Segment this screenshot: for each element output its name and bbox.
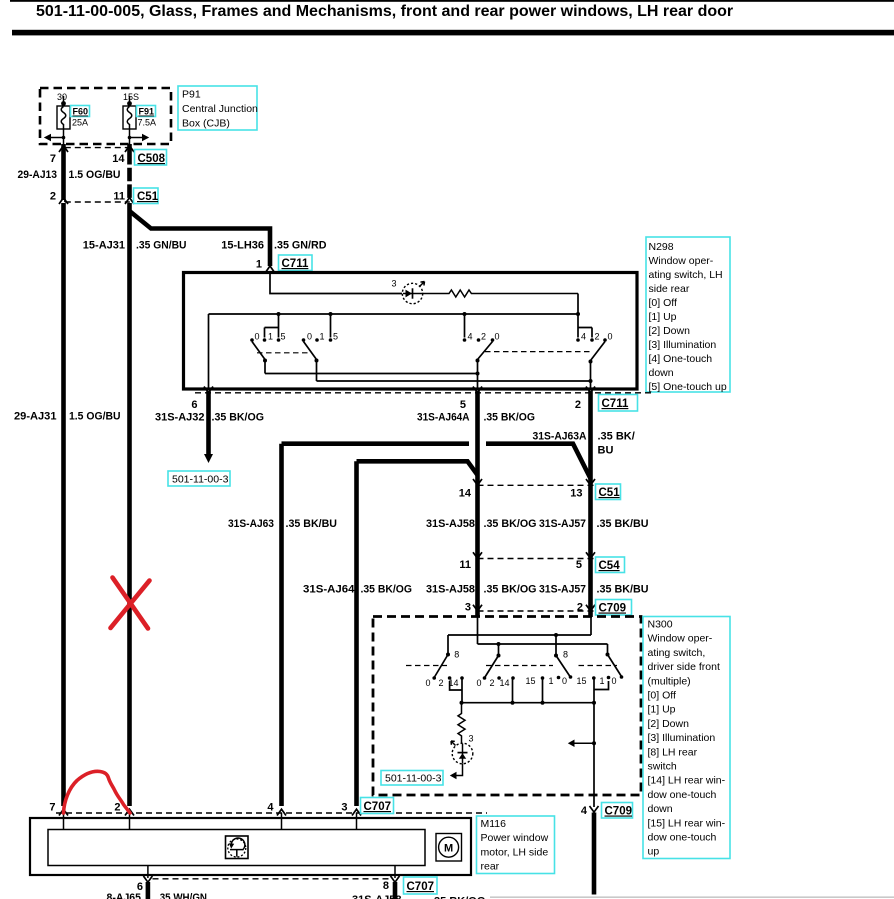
- svg-text:15: 15: [526, 676, 536, 686]
- svg-text:BU: BU: [598, 445, 614, 457]
- svg-text:[14] LH rear win-: [14] LH rear win-: [648, 775, 726, 787]
- svg-text:C51: C51: [599, 487, 621, 499]
- svg-text:C707: C707: [364, 801, 392, 813]
- svg-text:0: 0: [608, 332, 613, 342]
- svg-text:.35 BK/OG: .35 BK/OG: [484, 584, 537, 596]
- svg-text:501-11-00-3: 501-11-00-3: [385, 773, 442, 785]
- svg-text:501-11-00-005, Glass, Frames a: 501-11-00-005, Glass, Frames and Mechani…: [36, 3, 733, 20]
- svg-text:5: 5: [576, 559, 582, 571]
- svg-text:0: 0: [307, 332, 312, 342]
- svg-text:3: 3: [341, 802, 347, 814]
- svg-text:C711: C711: [602, 398, 629, 410]
- svg-text:F60: F60: [73, 107, 89, 117]
- svg-text:0: 0: [426, 678, 431, 688]
- svg-text:.35 BK/OG: .35 BK/OG: [361, 584, 413, 596]
- svg-text:0: 0: [255, 332, 260, 342]
- svg-text:dow one-touch: dow one-touch: [648, 789, 717, 801]
- svg-text:3: 3: [465, 602, 471, 614]
- svg-text:1: 1: [268, 332, 273, 342]
- svg-text:5: 5: [333, 332, 338, 342]
- svg-text:[1] Up: [1] Up: [648, 704, 676, 716]
- svg-text:C54: C54: [599, 560, 621, 572]
- svg-text:down: down: [649, 367, 674, 379]
- svg-text:1: 1: [256, 259, 262, 271]
- svg-text:N300: N300: [648, 619, 673, 631]
- svg-text:4: 4: [468, 332, 473, 342]
- svg-text:4: 4: [581, 332, 586, 342]
- svg-text:1.5 OG/BU: 1.5 OG/BU: [69, 411, 121, 423]
- svg-text:[4] One-touch: [4] One-touch: [649, 353, 713, 365]
- svg-text:7.5A: 7.5A: [138, 118, 157, 128]
- svg-text:[15] LH rear win-: [15] LH rear win-: [648, 817, 726, 829]
- svg-text:501-11-00-3: 501-11-00-3: [172, 474, 229, 486]
- svg-text:dow one-touch: dow one-touch: [648, 832, 717, 844]
- svg-text:15: 15: [577, 676, 587, 686]
- svg-text:30: 30: [57, 92, 67, 102]
- svg-text:C51: C51: [137, 191, 159, 203]
- svg-text:.35 BK/OG: .35 BK/OG: [484, 412, 536, 424]
- svg-text:[0] Off: [0] Off: [648, 690, 676, 702]
- svg-text:11: 11: [459, 559, 471, 571]
- svg-text:Window oper-: Window oper-: [649, 255, 714, 267]
- svg-text:2: 2: [490, 678, 495, 688]
- svg-text:2: 2: [114, 802, 120, 814]
- svg-text:.35 GN/BU: .35 GN/BU: [136, 240, 187, 252]
- svg-text:31S-AJ58: 31S-AJ58: [426, 518, 475, 530]
- svg-text:[0] Off: [0] Off: [649, 297, 677, 309]
- svg-text:.35 GN/RD: .35 GN/RD: [274, 240, 327, 252]
- svg-text:11: 11: [113, 191, 125, 203]
- svg-text:8: 8: [454, 650, 459, 660]
- svg-text:F91: F91: [139, 107, 155, 117]
- svg-text:C709: C709: [599, 603, 627, 615]
- svg-text:side rear: side rear: [649, 283, 690, 295]
- svg-text:29-AJ13: 29-AJ13: [18, 169, 58, 181]
- svg-text:0: 0: [562, 676, 567, 686]
- svg-text:5: 5: [460, 399, 466, 411]
- svg-text:[2] Down: [2] Down: [648, 718, 690, 730]
- svg-text:switch: switch: [648, 761, 677, 773]
- svg-text:[8] LH rear: [8] LH rear: [648, 746, 698, 758]
- svg-text:3: 3: [392, 279, 397, 289]
- svg-text:31S-AJ63A: 31S-AJ63A: [533, 431, 587, 443]
- svg-text:motor, LH side: motor, LH side: [481, 846, 549, 858]
- svg-text:.35 BK/BU: .35 BK/BU: [597, 518, 649, 530]
- svg-text:up: up: [648, 846, 660, 858]
- svg-text:N298: N298: [649, 241, 674, 253]
- svg-text:8-AJ65: 8-AJ65: [107, 892, 142, 899]
- svg-text:Central Junction: Central Junction: [182, 103, 258, 115]
- svg-text:[5] One-touch up: [5] One-touch up: [649, 381, 727, 393]
- svg-text:.35 BK/OG: .35 BK/OG: [484, 518, 537, 530]
- svg-text:C709: C709: [605, 806, 633, 818]
- svg-text:31S-AJ57: 31S-AJ57: [539, 518, 586, 530]
- svg-text:2: 2: [577, 602, 583, 614]
- svg-text:15S: 15S: [123, 92, 139, 102]
- svg-text:7: 7: [50, 153, 56, 165]
- svg-text:ating switch,: ating switch,: [648, 647, 706, 659]
- svg-text:1.5 OG/BU: 1.5 OG/BU: [69, 169, 121, 181]
- svg-text:0: 0: [495, 332, 500, 342]
- svg-text:driver side front: driver side front: [648, 661, 720, 673]
- svg-text:4: 4: [267, 802, 274, 814]
- svg-text:2: 2: [481, 332, 486, 342]
- svg-text:rear: rear: [481, 861, 500, 873]
- svg-text:1: 1: [600, 676, 605, 686]
- svg-text:Window oper-: Window oper-: [648, 633, 713, 645]
- svg-text:7: 7: [49, 802, 55, 814]
- svg-text:31S-AJ58: 31S-AJ58: [352, 894, 402, 899]
- svg-text:ating switch, LH: ating switch, LH: [649, 269, 723, 281]
- svg-text:C508: C508: [138, 153, 166, 165]
- svg-text:.35 BK/: .35 BK/: [598, 431, 635, 443]
- svg-text:M116: M116: [481, 818, 507, 830]
- svg-text:25A: 25A: [72, 118, 88, 128]
- svg-text:2: 2: [575, 399, 581, 411]
- svg-text:31S-AJ63: 31S-AJ63: [228, 518, 274, 530]
- svg-text:.35 WH/GN: .35 WH/GN: [157, 892, 207, 899]
- svg-text:31S-AJ64A: 31S-AJ64A: [417, 412, 470, 424]
- svg-text:2: 2: [439, 678, 444, 688]
- svg-text:M: M: [444, 843, 453, 855]
- svg-text:13: 13: [570, 488, 582, 500]
- svg-text:.35 BK/BU: .35 BK/BU: [597, 584, 649, 596]
- svg-text:Box (CJB): Box (CJB): [182, 118, 230, 130]
- svg-text:(multiple): (multiple): [648, 675, 691, 687]
- svg-text:0: 0: [477, 678, 482, 688]
- svg-text:4: 4: [581, 805, 588, 817]
- svg-text:8: 8: [383, 880, 389, 892]
- svg-text:[2] Down: [2] Down: [649, 325, 691, 337]
- svg-text:14: 14: [459, 488, 472, 500]
- svg-text:14: 14: [500, 678, 510, 688]
- svg-text:15-AJ31: 15-AJ31: [83, 240, 125, 252]
- svg-text:C711: C711: [282, 258, 309, 270]
- svg-text:0: 0: [612, 676, 617, 686]
- svg-text:5: 5: [281, 332, 286, 342]
- svg-text:.35 BK/OG: .35 BK/OG: [212, 412, 265, 424]
- svg-text:.35 BK/BU: .35 BK/BU: [286, 518, 338, 530]
- svg-text:3: 3: [469, 734, 474, 744]
- svg-text:6: 6: [191, 399, 197, 411]
- svg-text:2: 2: [595, 332, 600, 342]
- svg-text:C707: C707: [407, 881, 435, 893]
- svg-text:8: 8: [563, 650, 568, 660]
- svg-text:down: down: [648, 803, 673, 815]
- svg-text:31S-AJ58: 31S-AJ58: [426, 584, 475, 596]
- svg-text:15-LH36: 15-LH36: [221, 240, 264, 252]
- svg-text:1: 1: [320, 332, 325, 342]
- svg-text:Power window: Power window: [481, 832, 549, 844]
- svg-text:[3] Illumination: [3] Illumination: [648, 732, 716, 744]
- svg-text:.35 BK/OG: .35 BK/OG: [431, 896, 485, 899]
- svg-text:31S-AJ64: 31S-AJ64: [303, 584, 355, 596]
- svg-text:[1] Up: [1] Up: [649, 311, 677, 323]
- svg-text:[3] Illumination: [3] Illumination: [649, 339, 717, 351]
- svg-text:2: 2: [50, 191, 56, 203]
- svg-text:P91: P91: [182, 89, 201, 101]
- svg-text:31S-AJ57: 31S-AJ57: [539, 584, 586, 596]
- svg-text:14: 14: [112, 153, 125, 165]
- svg-text:29-AJ31: 29-AJ31: [14, 411, 57, 423]
- svg-text:31S-AJ32: 31S-AJ32: [155, 412, 205, 424]
- svg-text:1: 1: [549, 676, 554, 686]
